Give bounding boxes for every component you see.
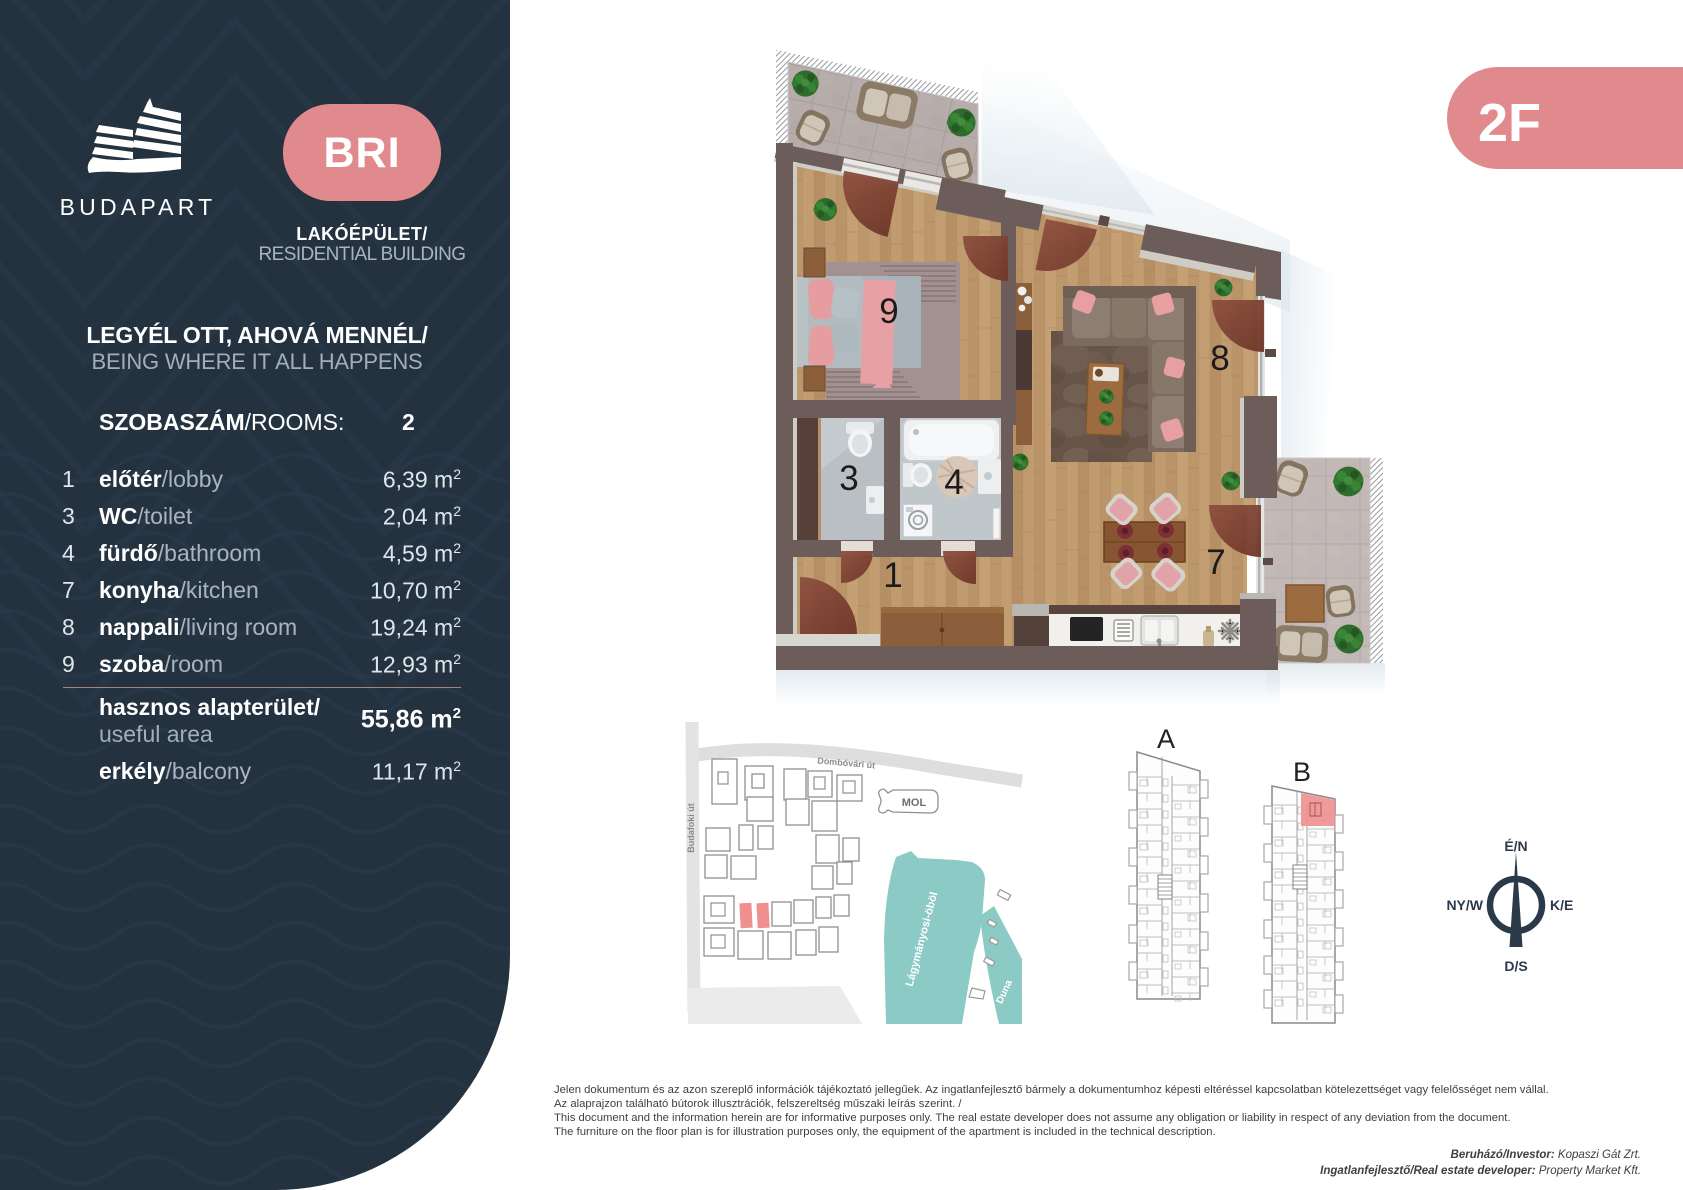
svg-text:9: 9 [879, 292, 898, 331]
svg-text:7: 7 [1206, 543, 1225, 582]
svg-text:MOL: MOL [902, 797, 927, 809]
svg-text:A: A [1157, 724, 1175, 754]
svg-text:Budafoki út: Budafoki út [686, 803, 696, 853]
svg-text:4: 4 [944, 463, 963, 502]
svg-text:É/N: É/N [1504, 838, 1527, 854]
svg-text:1: 1 [883, 556, 902, 595]
svg-text:K/E: K/E [1550, 897, 1573, 913]
svg-text:8: 8 [1210, 339, 1229, 378]
svg-text:B: B [1293, 757, 1311, 787]
svg-text:3: 3 [839, 459, 858, 498]
svg-text:NY/W: NY/W [1446, 897, 1483, 913]
svg-text:D/S: D/S [1504, 958, 1527, 974]
